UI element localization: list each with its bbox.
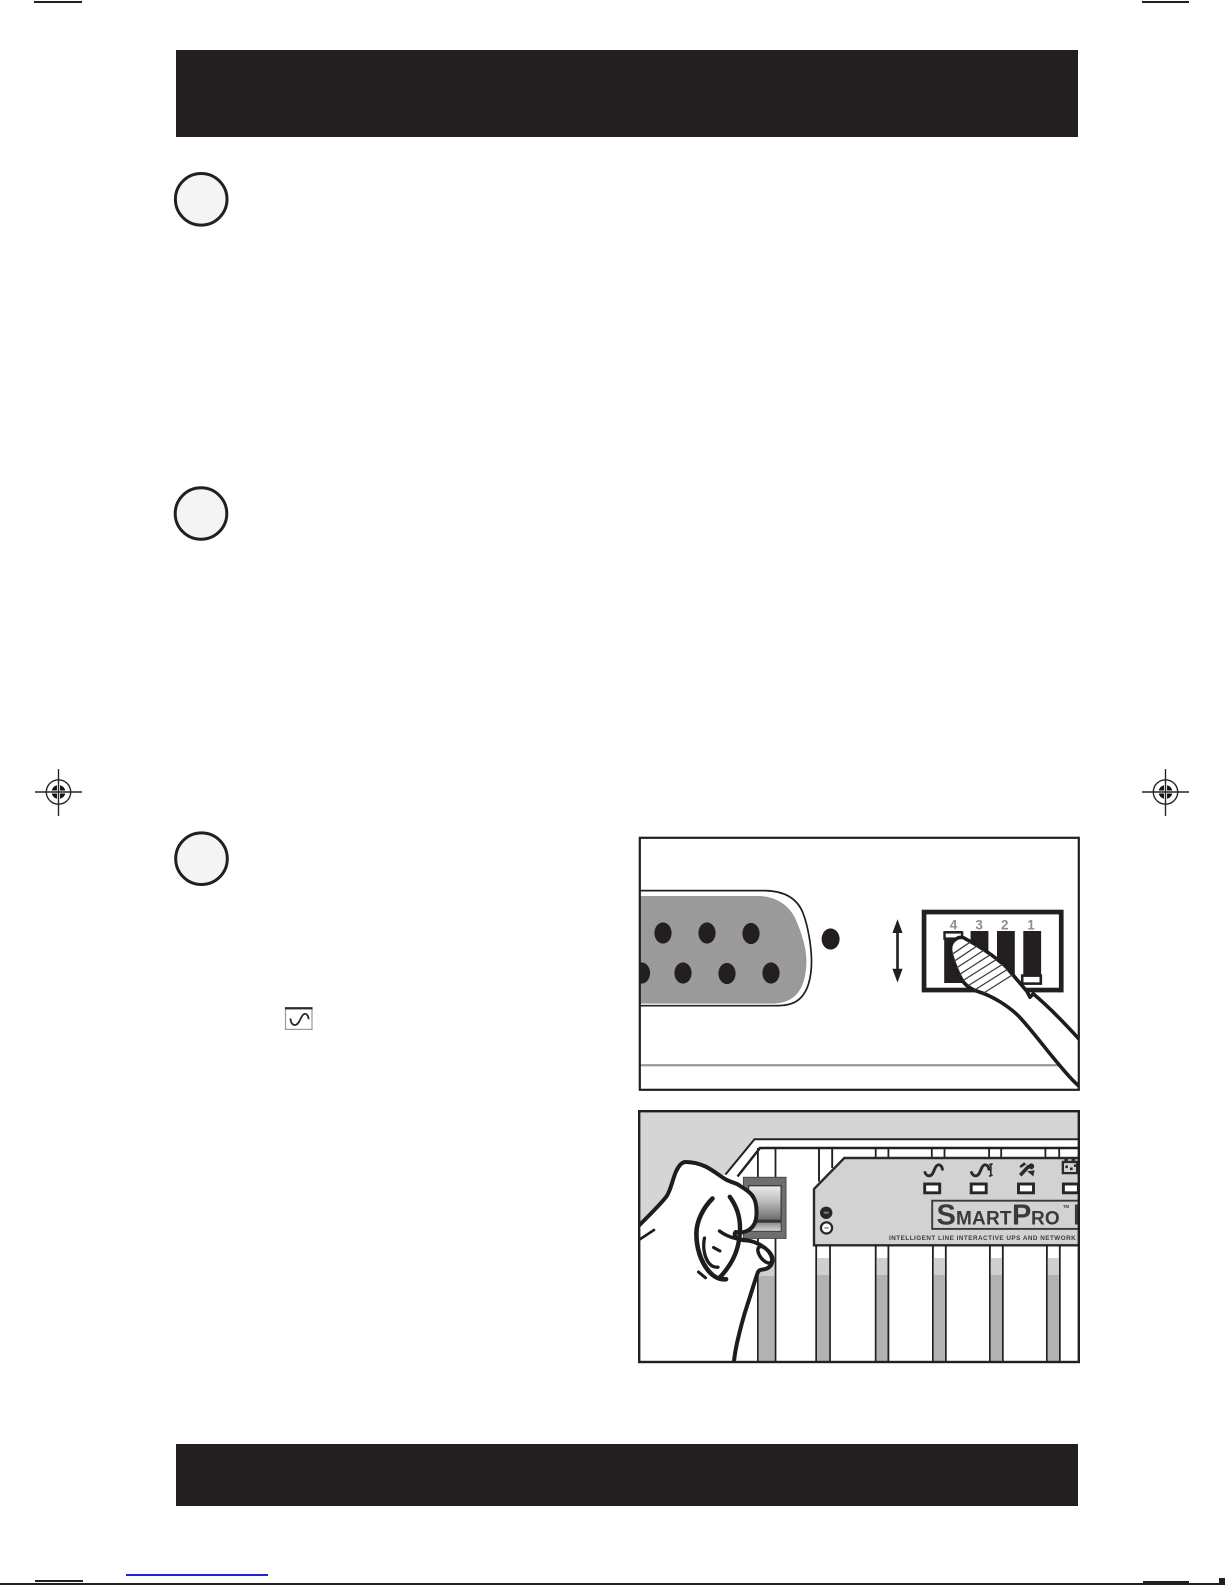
svg-text:S: S bbox=[937, 1200, 956, 1232]
svg-text:RO: RO bbox=[1031, 1209, 1060, 1230]
svg-text:P: P bbox=[1012, 1200, 1031, 1232]
svg-text:2: 2 bbox=[1001, 918, 1009, 933]
svg-text:TM: TM bbox=[1063, 1204, 1070, 1209]
svg-text:1: 1 bbox=[1027, 918, 1035, 933]
svg-text:4: 4 bbox=[950, 918, 958, 933]
svg-text:MART: MART bbox=[956, 1209, 1012, 1230]
svg-text:3: 3 bbox=[975, 918, 983, 933]
svg-text:INTELLIGENT LINE INTERACTIVE U: INTELLIGENT LINE INTERACTIVE UPS AND NET… bbox=[889, 1235, 1081, 1242]
